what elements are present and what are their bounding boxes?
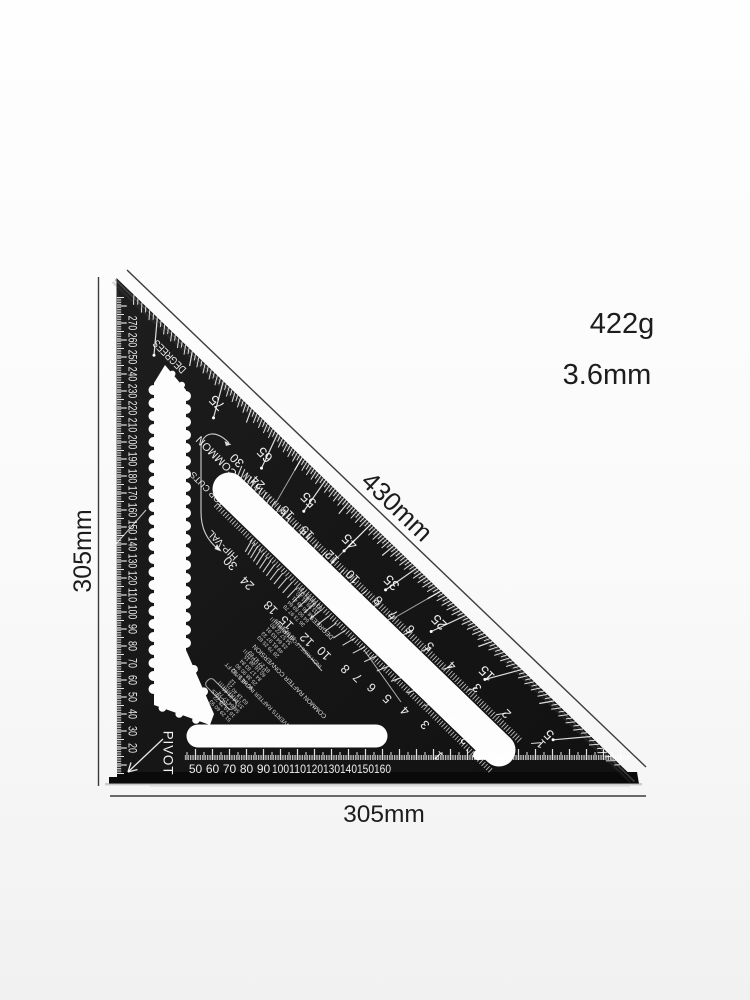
svg-text:160: 160 [374,762,391,776]
svg-text:422g: 422g [590,308,655,340]
svg-text:60: 60 [126,675,140,685]
svg-text:200: 200 [126,435,140,450]
svg-text:305mm: 305mm [69,509,97,592]
svg-text:60: 60 [206,762,220,776]
svg-text:250: 250 [126,350,140,365]
svg-text:305mm: 305mm [343,801,425,828]
svg-text:150: 150 [357,762,374,776]
svg-text:120: 120 [306,762,323,776]
svg-text:130: 130 [126,554,140,569]
svg-text:140: 140 [340,762,357,776]
svg-text:180: 180 [126,469,140,484]
svg-text:170: 170 [126,486,140,501]
svg-text:150: 150 [126,520,140,535]
svg-text:110: 110 [126,588,140,603]
svg-text:220: 220 [126,401,140,416]
svg-text:PIVOT: PIVOT [161,731,176,776]
svg-text:90: 90 [126,624,140,634]
svg-text:160: 160 [126,503,140,518]
svg-text:70: 70 [126,658,140,668]
svg-text:230: 230 [126,384,140,399]
svg-text:210: 210 [126,418,140,433]
svg-text:90: 90 [257,762,271,776]
svg-text:270: 270 [126,316,140,331]
svg-text:110: 110 [289,762,306,776]
svg-text:130: 130 [323,762,340,776]
svg-text:100: 100 [126,605,140,620]
svg-text:140: 140 [126,537,140,552]
svg-text:80: 80 [126,641,140,651]
svg-text:3.6mm: 3.6mm [563,359,652,391]
svg-text:50: 50 [189,762,203,776]
svg-text:260: 260 [126,333,140,348]
svg-text:20: 20 [126,743,140,753]
svg-text:40: 40 [126,709,140,719]
svg-text:50: 50 [126,692,140,702]
svg-text:190: 190 [126,452,140,467]
svg-text:100: 100 [272,762,289,776]
svg-text:120: 120 [126,571,140,586]
svg-text:240: 240 [126,367,140,382]
svg-text:30: 30 [126,726,140,736]
svg-text:70: 70 [223,762,237,776]
svg-text:80: 80 [240,762,254,776]
